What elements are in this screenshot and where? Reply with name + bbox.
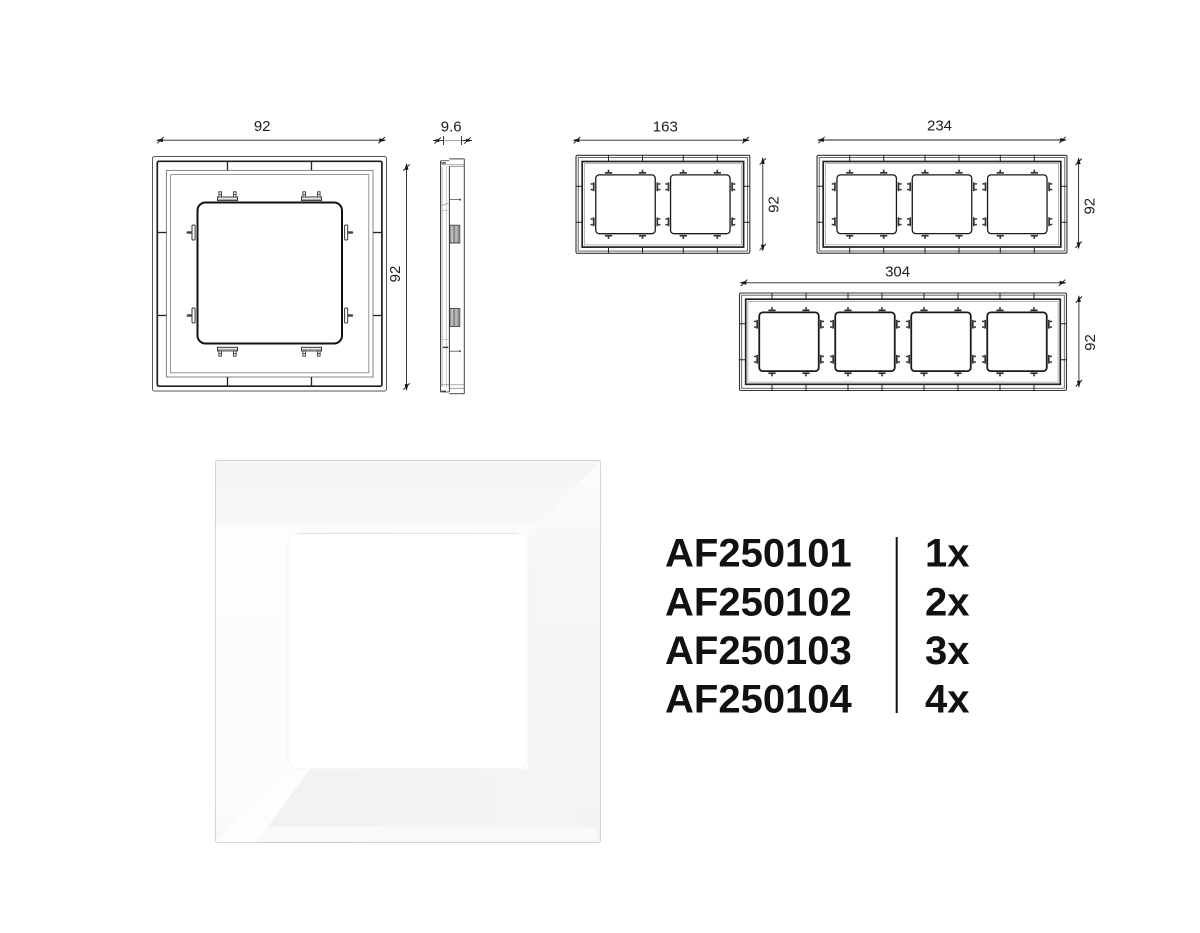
svg-text:4x: 4x bbox=[925, 678, 970, 722]
svg-text:234: 234 bbox=[927, 118, 952, 135]
svg-text:1x: 1x bbox=[925, 532, 970, 576]
svg-text:92: 92 bbox=[1082, 334, 1099, 351]
svg-text:304: 304 bbox=[885, 264, 910, 281]
svg-text:3x: 3x bbox=[925, 629, 970, 673]
svg-text:92: 92 bbox=[766, 196, 783, 213]
svg-text:163: 163 bbox=[653, 118, 678, 135]
svg-text:AF250101: AF250101 bbox=[665, 532, 852, 576]
svg-text:AF250103: AF250103 bbox=[665, 629, 852, 673]
svg-text:92: 92 bbox=[1082, 198, 1099, 215]
svg-text:AF250102: AF250102 bbox=[665, 580, 852, 624]
svg-text:9.6: 9.6 bbox=[441, 119, 462, 136]
svg-text:2x: 2x bbox=[925, 580, 970, 624]
svg-text:AF250104: AF250104 bbox=[665, 678, 853, 722]
svg-text:92: 92 bbox=[387, 266, 404, 283]
svg-text:92: 92 bbox=[254, 118, 271, 135]
